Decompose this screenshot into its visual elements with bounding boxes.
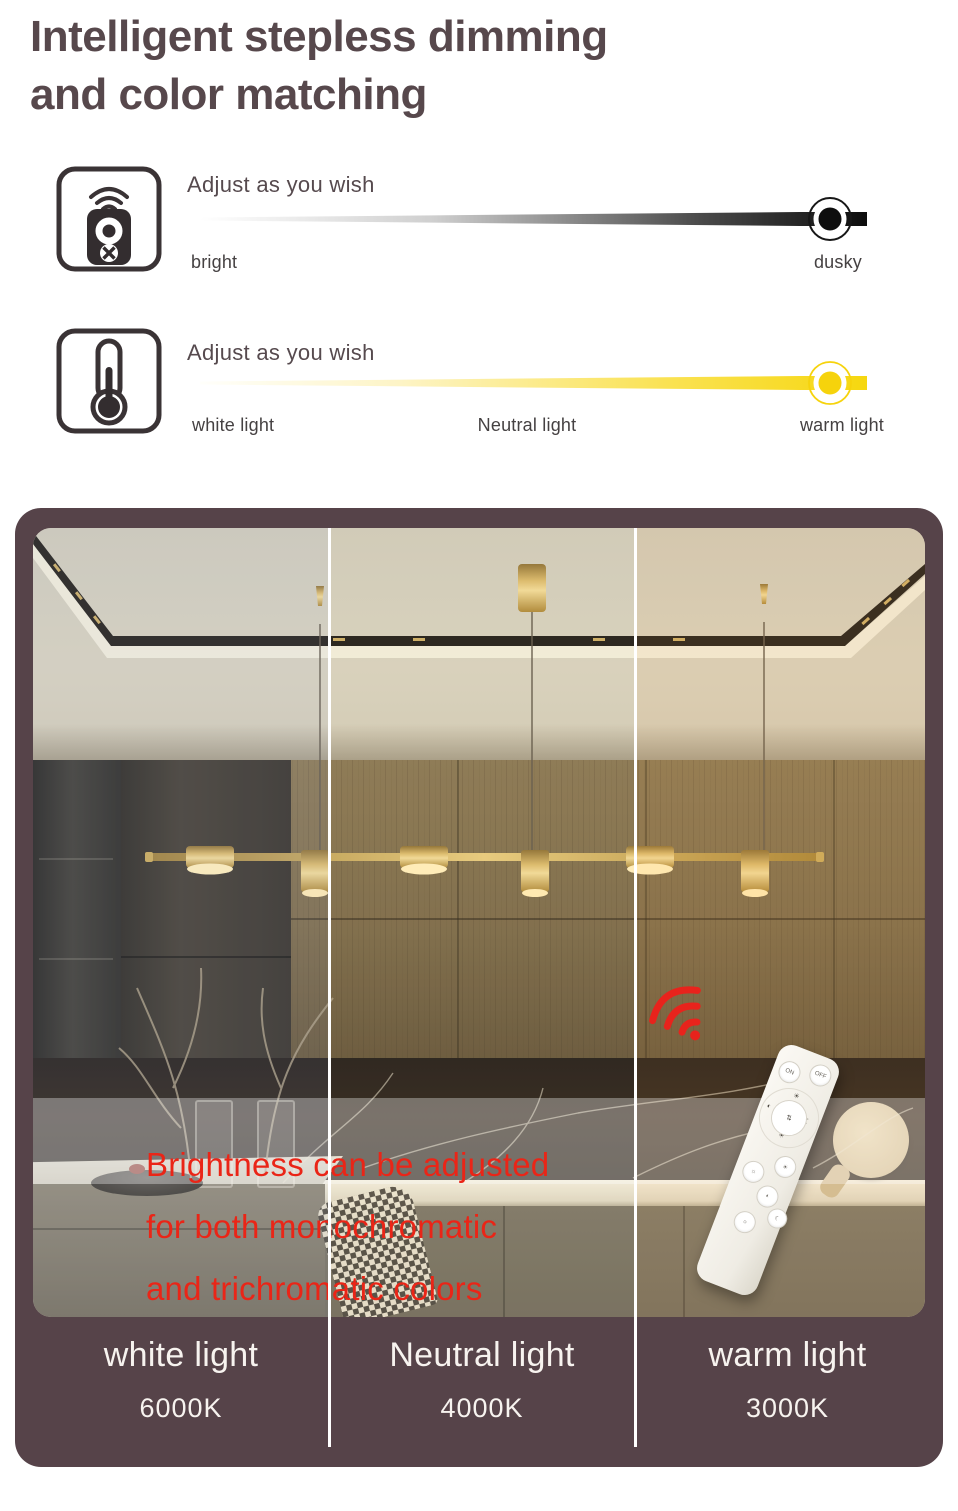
brightness-knob xyxy=(816,205,844,233)
title-line-2: and color matching xyxy=(30,66,790,124)
remote-halfmoon-button: ◐ xyxy=(753,1182,781,1210)
title-line-1: Intelligent stepless dimming xyxy=(30,8,790,66)
panel-white-light: white light 6000K xyxy=(33,1336,329,1456)
remote-off-button: OFF xyxy=(806,1061,834,1089)
tick-dusky: dusky xyxy=(662,252,862,273)
panel-name: white light xyxy=(33,1336,329,1375)
remote-sun-button: ☀ xyxy=(771,1153,799,1181)
remote-dial-center: ⇅ xyxy=(766,1095,813,1142)
thermometer-icon xyxy=(55,327,163,435)
remote-control-icon xyxy=(55,165,163,273)
kitchen-photo: Brightness can be adjusted for both mono… xyxy=(33,528,925,1317)
caption-line-1: Brightness can be adjusted xyxy=(146,1134,786,1196)
brightness-track xyxy=(200,212,867,226)
brightness-slider xyxy=(200,193,872,250)
color-temp-knob xyxy=(816,369,844,397)
tick-white-light: white light xyxy=(192,415,274,436)
panel-name: Neutral light xyxy=(329,1336,635,1375)
color-temp-slider xyxy=(200,357,872,414)
overlay-caption: Brightness can be adjusted for both mono… xyxy=(146,1134,786,1317)
remote-glow-button: ☼ xyxy=(731,1208,759,1236)
color-temp-track xyxy=(200,376,867,390)
panel-divider-right xyxy=(634,528,637,1447)
pendant-bar xyxy=(151,853,818,861)
tick-warm-light: warm light xyxy=(684,415,884,436)
panel-kelvin: 4000K xyxy=(329,1393,635,1424)
tick-bright: bright xyxy=(191,252,237,273)
panel-divider-left xyxy=(328,528,331,1447)
caption-line-2: for both monochromatic xyxy=(146,1196,786,1258)
remote-on-button: ON xyxy=(775,1058,803,1086)
panel-warm-light: warm light 3000K xyxy=(635,1336,940,1456)
pendant-canopy xyxy=(518,564,546,612)
panel-kelvin: 3000K xyxy=(635,1393,940,1424)
comparison-card: Brightness can be adjusted for both mono… xyxy=(15,508,943,1467)
panel-kelvin: 6000K xyxy=(33,1393,329,1424)
remote-bright-button: ☼ xyxy=(739,1158,767,1186)
panel-name: warm light xyxy=(635,1336,940,1375)
product-infographic: Intelligent stepless dimming and color m… xyxy=(0,0,958,1511)
caption-line-3: and trichromatic colors xyxy=(146,1258,786,1317)
tick-neutral-light: Neutral light xyxy=(372,415,682,436)
page-title: Intelligent stepless dimming and color m… xyxy=(30,8,790,124)
panel-neutral-light: Neutral light 4000K xyxy=(329,1336,635,1456)
